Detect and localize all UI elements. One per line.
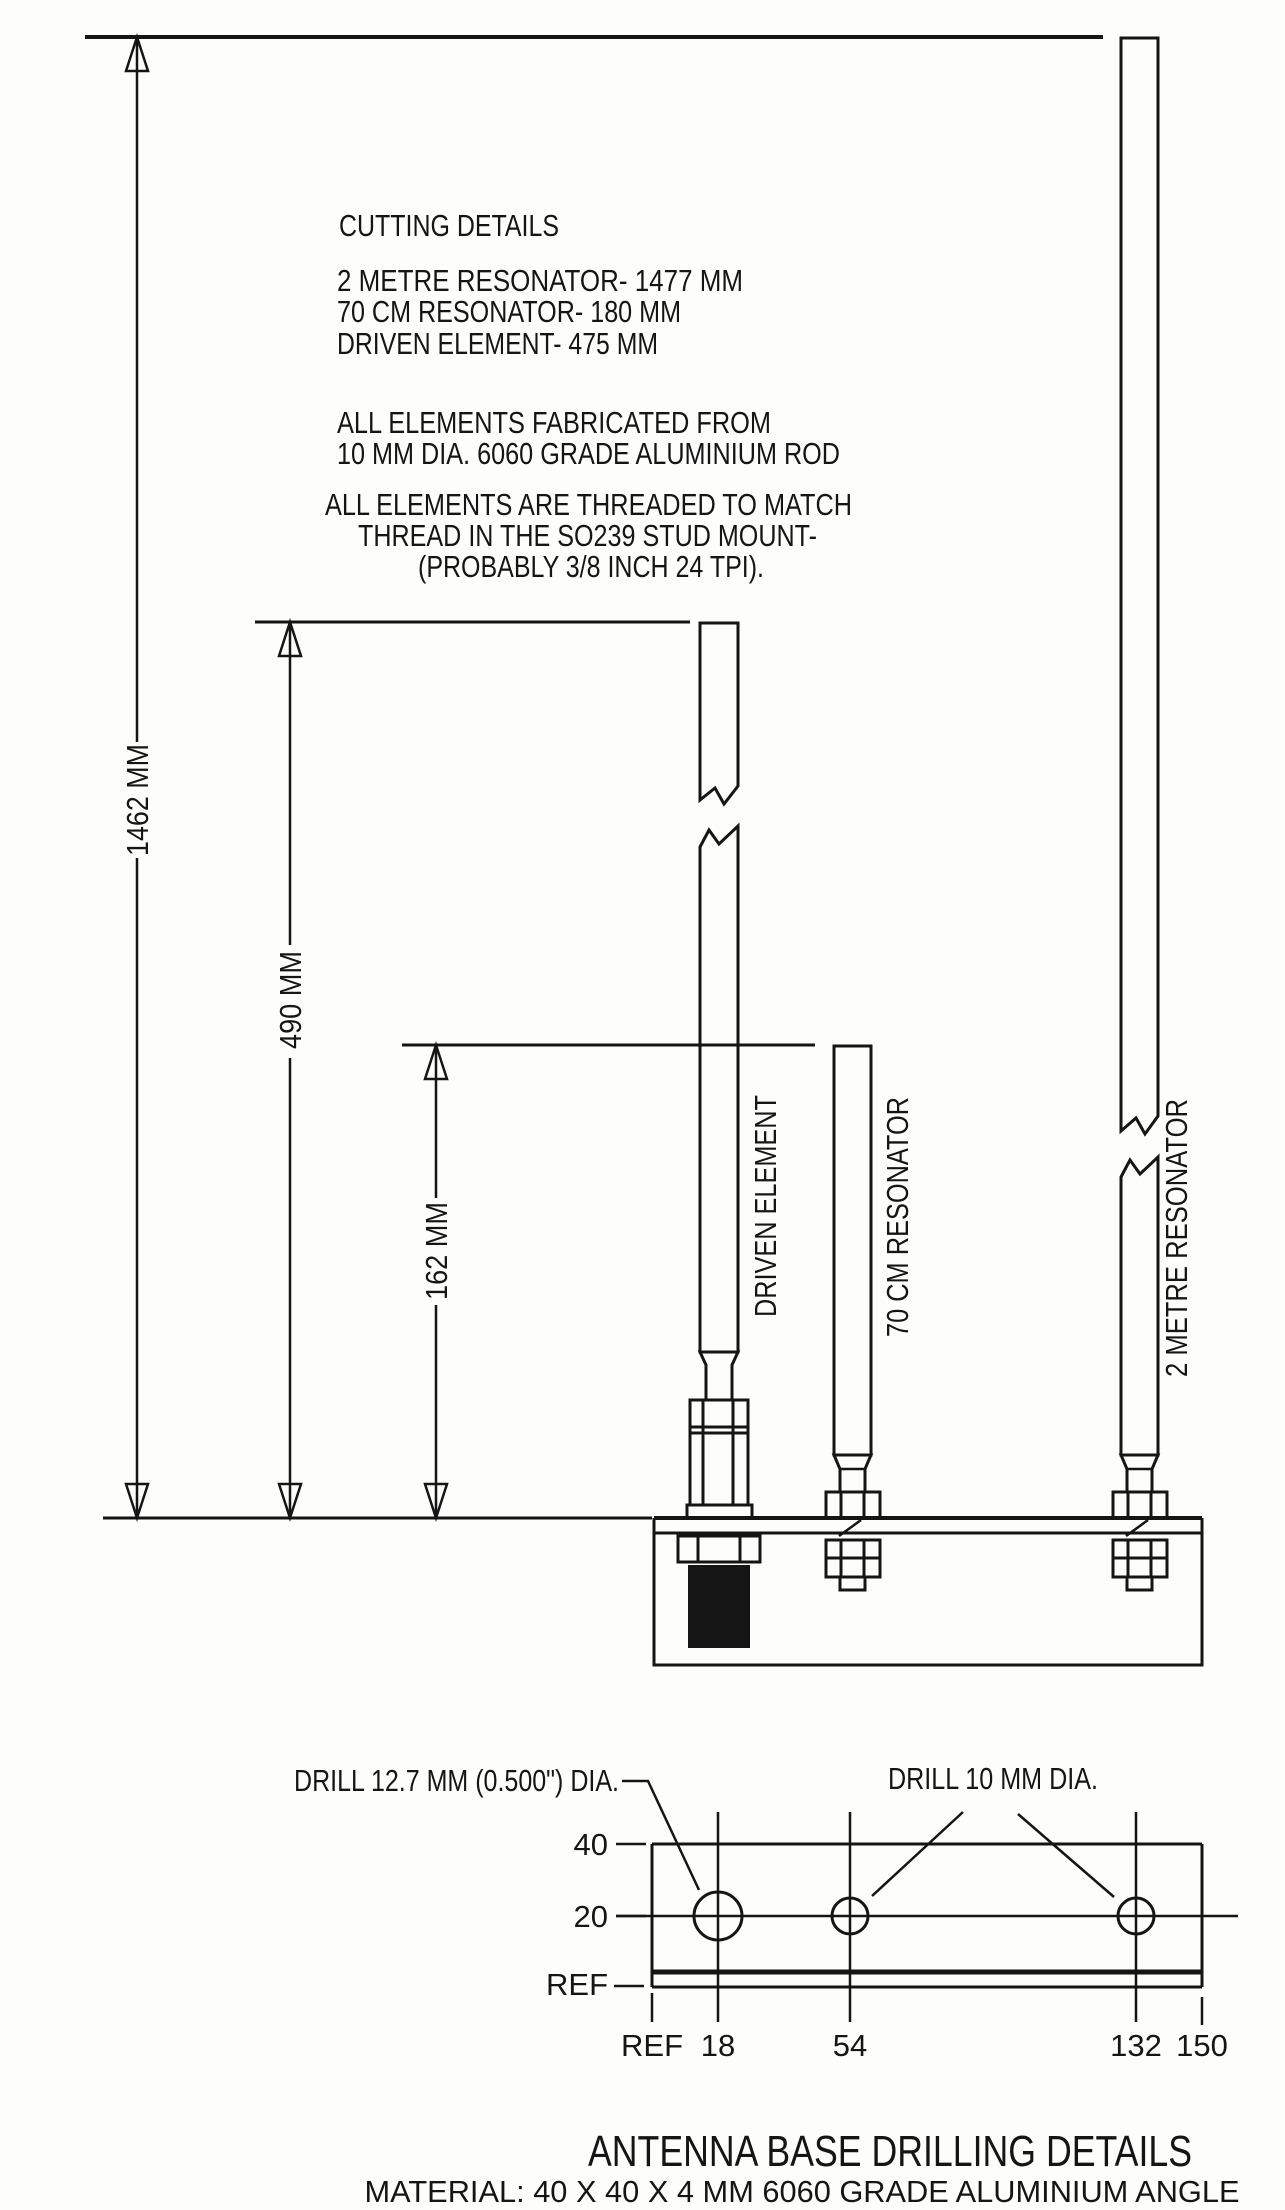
resonator-2m-stud-end [1127,1577,1152,1590]
antenna-drawing-page: CUTTING DETAILS 2 METRE RESONATOR- 1477 … [0,0,1285,2210]
title-block: ANTENNA BASE DRILLING DETAILS MATERIAL: … [365,2127,1240,2209]
resonator-2m-label: 2 METRE RESONATOR [1159,1099,1194,1377]
drill-large-leader [622,1781,699,1890]
so239-locknut [678,1536,760,1562]
row-label-ref: REF [546,1967,608,2002]
col-label-54: 54 [833,2028,867,2063]
drilling-detail: DRILL 12.7 MM (0.500") DIA. DRILL 10 MM … [294,1761,1238,2063]
note-fabricated-from: ALL ELEMENTS FABRICATED FROM [337,405,771,440]
material-note: MATERIAL: 40 X 40 X 4 MM 6060 GRADE ALUM… [365,2174,1240,2209]
dimension-driven-490: 490 MM [255,622,690,1518]
driven-element-label: DRIVEN ELEMENT [748,1095,783,1317]
row-label-20: 20 [574,1899,608,1934]
note-rod-material: 10 MM DIA. 6060 GRADE ALUMINIUM ROD [337,436,840,471]
resonator-2m-rod-lower [1121,1157,1158,1455]
driven-element-rod-lower [700,826,738,1352]
dim-490-label: 490 MM [273,951,308,1049]
row-label-40: 40 [574,1827,608,1862]
cutting-notes: CUTTING DETAILS 2 METRE RESONATOR- 1477 … [325,208,852,584]
note-threaded-1: ALL ELEMENTS ARE THREADED TO MATCH [325,487,852,522]
drill-small-leader-right [1018,1814,1114,1897]
resonator-2m-taper-stud [1121,1455,1158,1492]
driven-element-threaded-stud [700,1352,738,1400]
antenna-drawing: CUTTING DETAILS 2 METRE RESONATOR- 1477 … [0,0,1285,2210]
note-driven-element-length: DRIVEN ELEMENT- 475 MM [337,326,658,361]
drill-small-callout: DRILL 10 MM DIA. [888,1761,1098,1796]
resonator-2m-upper-nut [1113,1492,1167,1518]
col-label-132: 132 [1110,2028,1162,2063]
col-label-150: 150 [1176,2028,1228,2063]
col-label-18: 18 [701,2028,735,2063]
resonator-70cm-rod [834,1046,871,1455]
so239-coupler-body [690,1400,748,1505]
resonator-2m-rod-upper [1121,38,1158,1134]
dim-1462-label: 1462 MM [120,744,155,856]
cutting-notes-title: CUTTING DETAILS [339,208,559,243]
col-label-ref: REF [621,2028,683,2063]
dim-162-label: 162 MM [419,1202,454,1300]
note-2m-resonator-length: 2 METRE RESONATOR- 1477 MM [337,263,743,298]
so239-connector-body [688,1565,750,1648]
driven-element-rod-upper [700,623,738,804]
resonator-70cm-taper-stud [834,1455,871,1492]
note-threaded-3: (PROBABLY 3/8 INCH 24 TPI). [418,549,764,584]
dimension-overall-1462: 1462 MM [85,37,1103,1518]
resonator-70cm-drawing [826,1046,880,1590]
drill-large-callout: DRILL 12.7 MM (0.500") DIA. [294,1763,619,1798]
drawing-title: ANTENNA BASE DRILLING DETAILS [588,2127,1192,2176]
note-threaded-2: THREAD IN THE SO239 STUD MOUNT- [358,518,817,553]
resonator-70cm-label: 70 CM RESONATOR [880,1097,915,1337]
resonator-70cm-stud-end [840,1577,865,1590]
drill-small-leader-left [872,1812,963,1896]
resonator-70cm-upper-nut [826,1492,880,1518]
note-70cm-resonator-length: 70 CM RESONATOR- 180 MM [337,294,681,329]
